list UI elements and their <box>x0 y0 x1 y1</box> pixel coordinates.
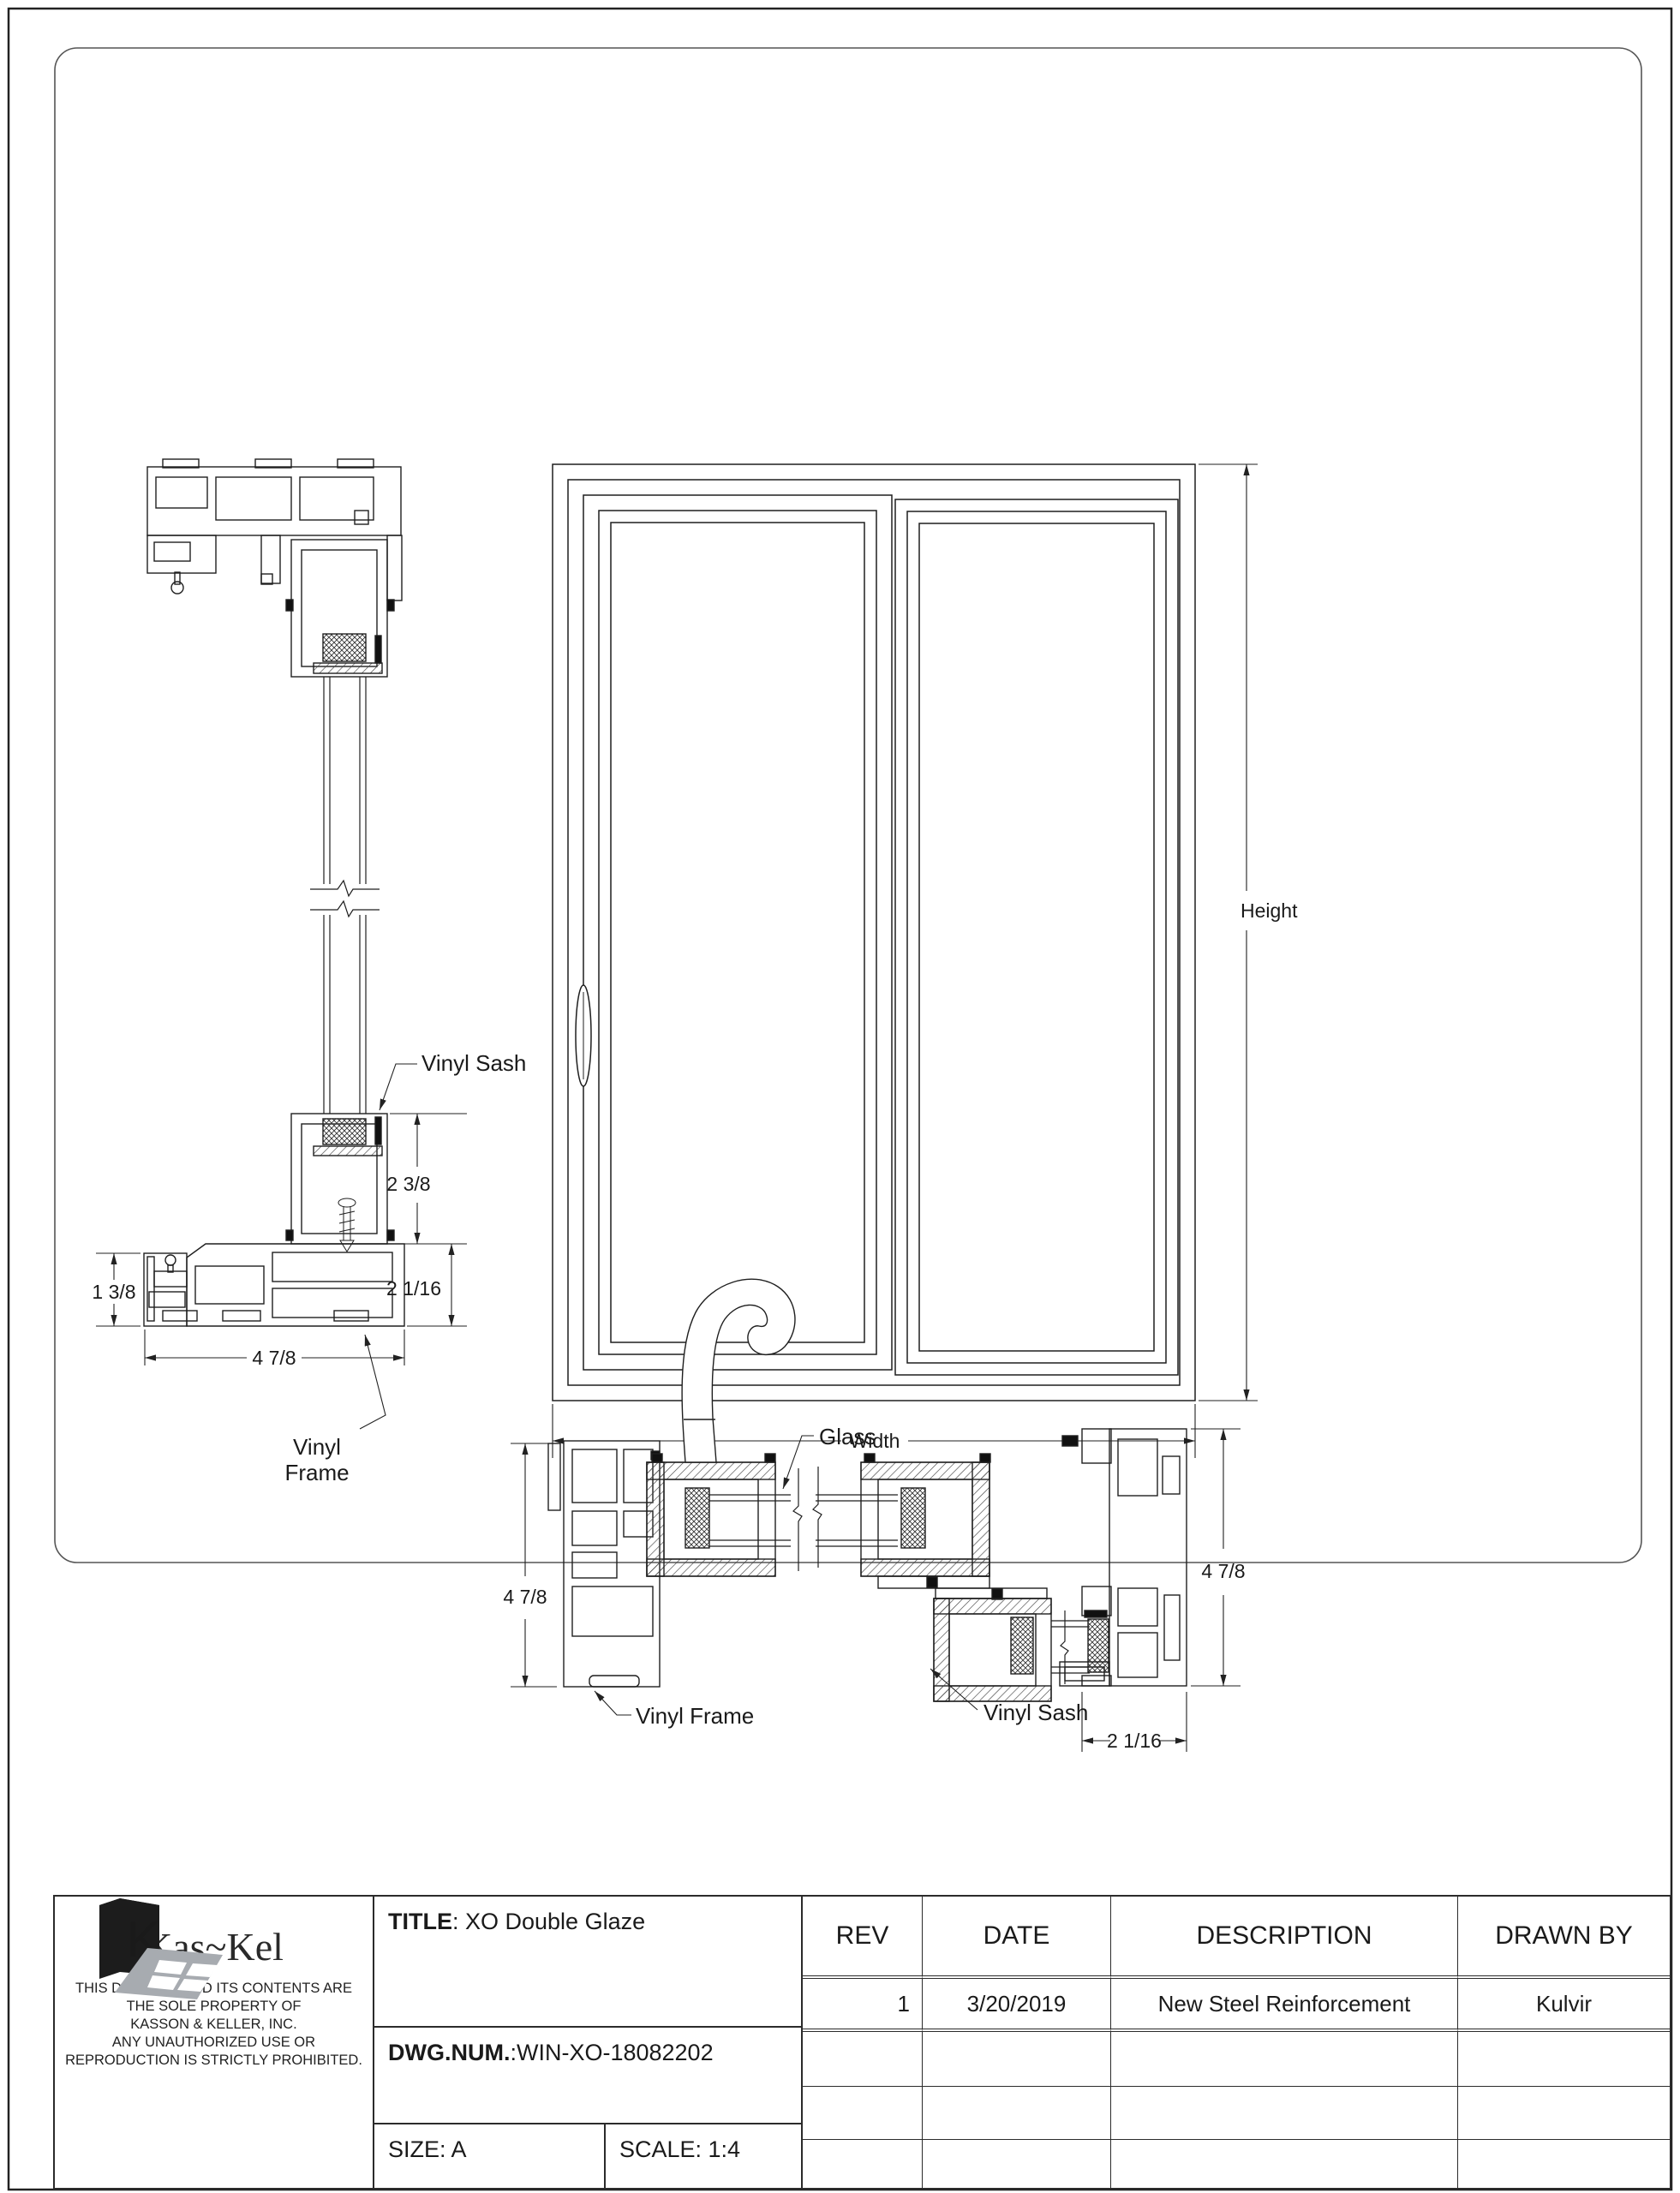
elevation-x-panel <box>583 495 892 1370</box>
vinyl-frame-label-line2: Frame <box>284 1460 349 1485</box>
date-header: DATE <box>923 1897 1111 1979</box>
size-scale-row: SIZE: A SCALE: 1:4 <box>374 2124 801 2188</box>
dim-2-1-16-left: 2 1/16 <box>386 1277 441 1300</box>
plan-section <box>511 1279 1241 1752</box>
description-cell <box>1111 2087 1458 2140</box>
drawn-by-cell <box>1458 2140 1670 2188</box>
elevation-handle <box>576 985 591 1086</box>
glass-label: Glass <box>819 1424 876 1449</box>
vinyl-sash-leader <box>380 1064 417 1110</box>
glass-lines <box>310 677 380 1114</box>
scale-cell: SCALE: 1:4 <box>606 2124 801 2188</box>
plan-x-glass <box>709 1467 898 1571</box>
title-block-middle-column: TITLE: XO Double Glaze DWG.NUM.:WIN-XO-1… <box>374 1897 803 2188</box>
kaskel-logo-icon: K <box>55 1897 226 2005</box>
title-block-logo-cell: K Kas~Kel THIS DRAWING AND ITS CONTENTS … <box>55 1897 374 2188</box>
description-cell <box>1111 2140 1458 2188</box>
vinyl-frame-label-plan: Vinyl Frame <box>636 1703 754 1729</box>
date-cell <box>923 2087 1111 2140</box>
plan-handle <box>682 1279 795 1462</box>
plan-o-glass <box>1051 1610 1090 1684</box>
vinyl-sash-label-left: Vinyl Sash <box>421 1050 526 1076</box>
drawn-by-cell: Kulvir <box>1458 1979 1670 2032</box>
legal-line: KASSON & KELLER, INC. <box>65 2016 362 2034</box>
dim-2-3-8: 2 3/8 <box>386 1173 430 1195</box>
plan-x-sash-meeting <box>861 1454 990 1576</box>
dim-2-1-16-plan: 2 1/16 <box>1107 1730 1162 1752</box>
plan-interlock <box>878 1576 1047 1599</box>
size-cell: SIZE: A <box>374 2124 606 2188</box>
plan-left-jamb <box>548 1441 660 1687</box>
dim-4-7-8-left: 4 7/8 <box>252 1347 296 1369</box>
vertical-section-geometry <box>144 459 404 1326</box>
dim-4-7-8-plan-right: 4 7/8 <box>1201 1560 1245 1582</box>
drawn-by-header: DRAWN BY <box>1458 1897 1670 1979</box>
elevation-o-panel <box>895 499 1178 1375</box>
vinyl-frame-leader <box>360 1335 386 1429</box>
left-section-annotations <box>96 1064 467 1429</box>
title-value: : XO Double Glaze <box>452 1909 645 1934</box>
dim-4-7-8-plan-left: 4 7/8 <box>503 1586 547 1608</box>
date-cell: 3/20/2019 <box>923 1979 1111 2032</box>
rev-cell <box>803 2087 923 2140</box>
dwg-num-value: :WIN-XO-18082202 <box>510 2040 713 2065</box>
description-header: DESCRIPTION <box>1111 1897 1458 1979</box>
elevation-view <box>553 464 1258 1458</box>
dwg-num-cell: DWG.NUM.:WIN-XO-18082202 <box>374 2028 801 2124</box>
vinyl-frame-label-line1: Vinyl <box>293 1434 341 1460</box>
rev-cell <box>803 2140 923 2188</box>
plan-vinyl-frame-leader <box>595 1691 631 1715</box>
title-cell: TITLE: XO Double Glaze <box>374 1897 801 2028</box>
height-dimension <box>1199 464 1258 1401</box>
rev-cell <box>803 2032 923 2087</box>
description-cell <box>1111 2032 1458 2087</box>
rev-header: REV <box>803 1897 923 1979</box>
plan-x-sash-lock <box>647 1454 775 1576</box>
revision-table: REV DATE DESCRIPTION DRAWN BY 1 3/20/201… <box>803 1897 1670 2188</box>
vinyl-sash-label-plan: Vinyl Sash <box>983 1700 1088 1725</box>
date-cell <box>923 2032 1111 2087</box>
date-cell <box>923 2140 1111 2188</box>
plan-o-sash <box>934 1598 1051 1701</box>
legal-line: ANY UNAUTHORIZED USE OR <box>65 2034 362 2052</box>
title-block: K Kas~Kel THIS DRAWING AND ITS CONTENTS … <box>53 1895 1671 2190</box>
description-cell: New Steel Reinforcement <box>1111 1979 1458 2032</box>
plan-right-jamb <box>1060 1429 1187 1686</box>
legal-line: REPRODUCTION IS STRICTLY PROHIBITED. <box>65 2052 362 2070</box>
cad-drawing-svg: Height Width <box>0 0 1680 2193</box>
drawn-by-cell <box>1458 2087 1670 2140</box>
height-label: Height <box>1241 899 1298 922</box>
drawing-sheet: Height Width <box>0 0 1680 2193</box>
sheet-border <box>9 9 1671 2190</box>
dim-1-3-8: 1 3/8 <box>92 1281 135 1303</box>
dwg-num-label: DWG.NUM. <box>388 2040 510 2065</box>
rev-cell: 1 <box>803 1979 923 2032</box>
drawing-frame <box>55 48 1641 1563</box>
title-label: TITLE <box>388 1909 452 1934</box>
drawn-by-cell <box>1458 2032 1670 2087</box>
